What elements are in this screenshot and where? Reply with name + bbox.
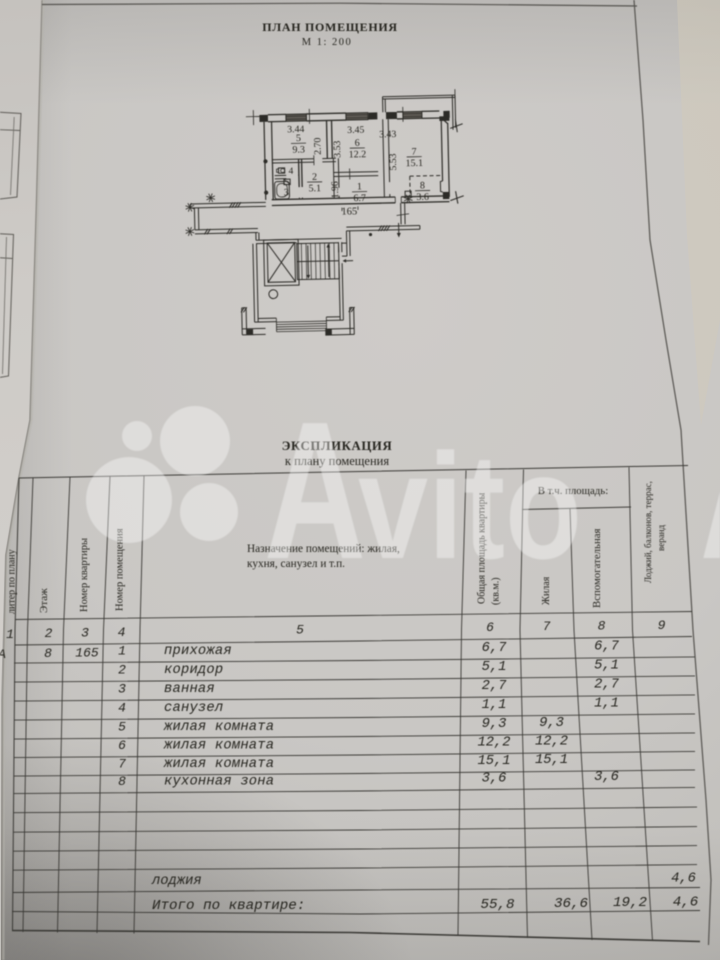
svg-text:19,2: 19,2	[613, 895, 648, 911]
svg-text:9: 9	[658, 618, 666, 633]
svg-text:4,6: 4,6	[671, 872, 696, 887]
svg-text:12,2: 12,2	[535, 735, 568, 750]
svg-text:5.1: 5.1	[308, 183, 321, 194]
svg-text:кухонная зона: кухонная зона	[164, 775, 274, 790]
svg-text:жилая комната: жилая комната	[163, 757, 274, 772]
svg-text:6: 6	[355, 138, 360, 149]
svg-text:Этаж: Этаж	[38, 588, 50, 613]
svg-text:3,6: 3,6	[482, 771, 507, 786]
svg-text:3: 3	[118, 682, 126, 697]
svg-text:Назначение помещений: жилая,: Назначение помещений: жилая,	[247, 543, 400, 555]
svg-text:жилая комната: жилая комната	[163, 720, 274, 735]
svg-text:прихожая: прихожая	[164, 644, 232, 659]
svg-text:ЭКСПЛИКАЦИЯ: ЭКСПЛИКАЦИЯ	[282, 439, 393, 453]
svg-text:3.45: 3.45	[347, 125, 364, 136]
svg-text:165: 165	[75, 646, 99, 661]
svg-text:6,7: 6,7	[594, 640, 620, 655]
svg-text:Лоджий, балконов, террас,: Лоджий, балконов, террас,	[643, 481, 653, 583]
svg-text:3: 3	[284, 187, 289, 198]
svg-text:Номер помещения: Номер помещения	[115, 528, 126, 611]
svg-text:3.53: 3.53	[332, 140, 343, 157]
svg-text:5: 5	[296, 623, 304, 638]
svg-text:(кв.м.): (кв.м.)	[491, 577, 502, 605]
svg-text:2: 2	[118, 663, 126, 678]
svg-text:12.2: 12.2	[349, 149, 367, 160]
svg-text:2: 2	[312, 172, 317, 183]
svg-text:3.6: 3.6	[416, 192, 429, 203]
svg-text:Общая площадь квартиры: Общая площадь квартиры	[477, 492, 488, 604]
svg-text:5: 5	[118, 720, 126, 735]
svg-text:Итого по квартире:: Итого по квартире:	[152, 898, 305, 914]
svg-text:6,7: 6,7	[482, 641, 508, 656]
svg-text:5.53: 5.53	[388, 153, 399, 170]
svg-text:2.70: 2.70	[312, 137, 323, 154]
svg-text:7: 7	[543, 619, 551, 634]
svg-text:9.3: 9.3	[292, 144, 305, 155]
svg-text:кухня, санузел и т.п.: кухня, санузел и т.п.	[247, 558, 345, 570]
svg-text:коридор: коридор	[164, 663, 223, 678]
svg-text:36,6: 36,6	[554, 896, 589, 912]
svg-text:М 1: 200: М 1: 200	[302, 37, 353, 48]
svg-text:15,1: 15,1	[535, 753, 568, 768]
svg-text:1: 1	[118, 644, 126, 659]
svg-text:ПЛАН ПОМЕЩЕНИЯ: ПЛАН ПОМЕЩЕНИЯ	[262, 20, 398, 34]
svg-text:1,1: 1,1	[594, 697, 619, 712]
svg-text:3: 3	[81, 626, 89, 641]
svg-text:15.1: 15.1	[406, 158, 424, 169]
svg-text:ванная: ванная	[164, 682, 215, 697]
svg-text:55,8: 55,8	[480, 897, 515, 913]
svg-text:1: 1	[6, 627, 14, 642]
svg-text:Вспомогательная: Вспомогательная	[591, 528, 603, 608]
svg-text:1.96: 1.96	[330, 181, 341, 198]
svg-text:5,1: 5,1	[482, 660, 507, 675]
svg-text:веранд: веранд	[656, 524, 666, 551]
svg-text:жилая комната: жилая комната	[163, 739, 274, 754]
svg-text:А: А	[0, 647, 6, 662]
svg-text:литер по плану: литер по плану	[7, 549, 18, 614]
svg-text:4: 4	[118, 625, 126, 640]
svg-text:8: 8	[420, 180, 425, 191]
svg-text:8: 8	[598, 619, 606, 634]
svg-text:В т.ч. площадь:: В т.ч. площадь:	[538, 485, 608, 497]
svg-text:Номер квартиры: Номер квартиры	[79, 538, 90, 612]
svg-text:Жилая: Жилая	[541, 576, 552, 605]
svg-text:7: 7	[412, 147, 417, 158]
svg-text:6: 6	[118, 738, 126, 753]
svg-text:6.7: 6.7	[353, 193, 366, 204]
svg-text:4: 4	[118, 701, 126, 716]
svg-text:лоджия: лоджия	[151, 874, 202, 889]
svg-text:к плану помещения: к плану помещения	[285, 454, 389, 468]
svg-text:3.43: 3.43	[379, 129, 396, 140]
svg-text:2,7: 2,7	[482, 679, 508, 694]
svg-text:9,3: 9,3	[539, 716, 564, 731]
svg-text:2,7: 2,7	[594, 678, 620, 693]
svg-text:5: 5	[296, 133, 301, 144]
svg-text:7: 7	[118, 757, 126, 772]
svg-text:2: 2	[45, 626, 53, 641]
svg-text:4: 4	[289, 167, 294, 177]
svg-text:12,2: 12,2	[477, 735, 510, 750]
svg-text:8: 8	[44, 646, 52, 661]
svg-text:1,1: 1,1	[482, 698, 507, 713]
svg-text:3,6: 3,6	[594, 770, 619, 785]
svg-text:165: 165	[341, 206, 357, 217]
svg-text:санузел: санузел	[164, 701, 223, 716]
svg-text:6: 6	[486, 620, 494, 635]
svg-text:8: 8	[118, 774, 126, 789]
svg-text:9,3: 9,3	[482, 717, 507, 732]
svg-text:15,1: 15,1	[477, 754, 510, 769]
svg-text:4,6: 4,6	[673, 895, 699, 911]
svg-text:1: 1	[357, 181, 362, 192]
svg-text:5,1: 5,1	[594, 659, 619, 674]
